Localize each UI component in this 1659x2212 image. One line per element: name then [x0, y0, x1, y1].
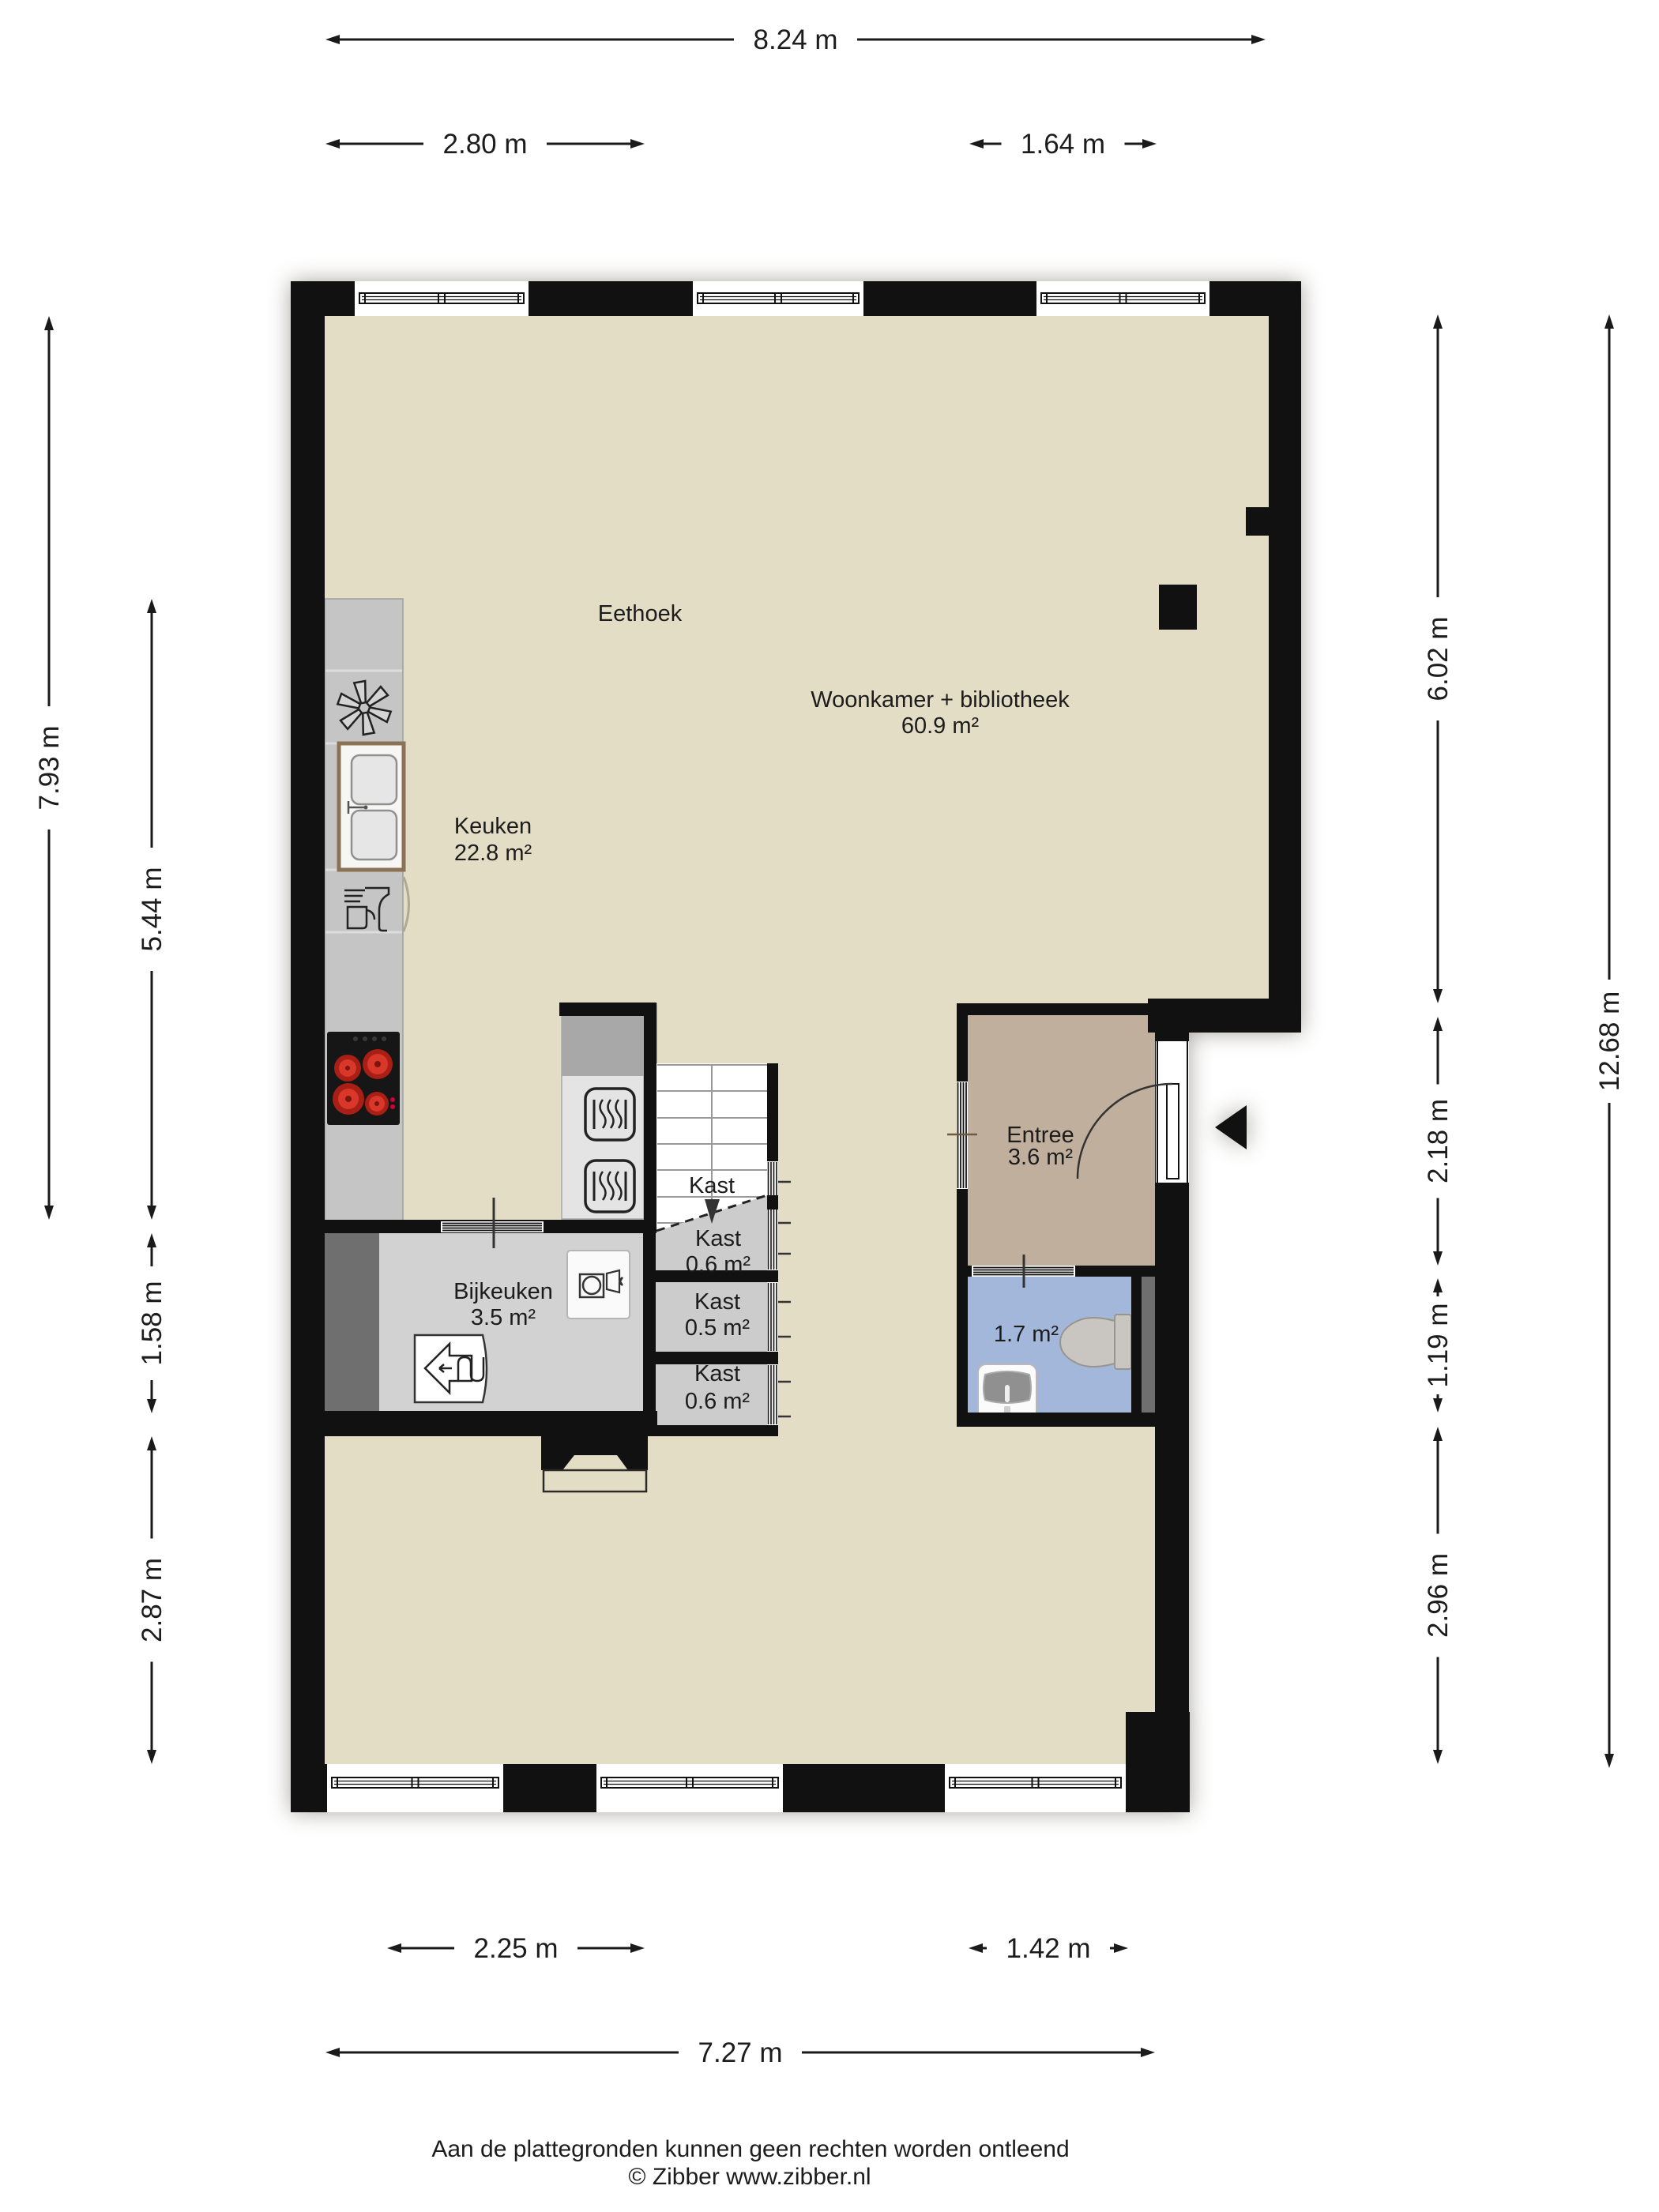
- svg-text:Kast: Kast: [689, 1173, 735, 1198]
- svg-text:22.8 m²: 22.8 m²: [454, 841, 532, 866]
- svg-text:60.9 m²: 60.9 m²: [901, 713, 980, 739]
- svg-text:Aan de plattegronden kunnen ge: Aan de plattegronden kunnen geen rechten…: [431, 2136, 1069, 2162]
- svg-text:0.6 m²: 0.6 m²: [685, 1389, 750, 1414]
- svg-text:6.02 m: 6.02 m: [1423, 617, 1454, 702]
- svg-text:Kast: Kast: [695, 1226, 741, 1251]
- svg-text:Eethoek: Eethoek: [598, 601, 683, 626]
- svg-text:7.27 m: 7.27 m: [698, 2037, 783, 2068]
- svg-text:Kast: Kast: [694, 1361, 740, 1386]
- svg-text:2.96 m: 2.96 m: [1423, 1553, 1454, 1638]
- svg-text:7.93 m: 7.93 m: [34, 726, 65, 811]
- svg-text:1.7 m²: 1.7 m²: [994, 1322, 1059, 1347]
- svg-text:1.58 m: 1.58 m: [137, 1281, 167, 1366]
- svg-text:5.44 m: 5.44 m: [137, 867, 167, 952]
- svg-text:8.24 m: 8.24 m: [754, 24, 838, 55]
- svg-text:2.18 m: 2.18 m: [1423, 1099, 1454, 1183]
- svg-text:0.5 m²: 0.5 m²: [685, 1315, 750, 1341]
- svg-text:Keuken: Keuken: [454, 814, 532, 839]
- svg-text:3.6 m²: 3.6 m²: [1008, 1145, 1074, 1170]
- svg-text:1.64 m: 1.64 m: [1021, 129, 1105, 160]
- svg-text:2.87 m: 2.87 m: [137, 1558, 167, 1642]
- svg-text:Woonkamer + bibliotheek: Woonkamer + bibliotheek: [811, 687, 1070, 713]
- svg-text:Bijkeuken: Bijkeuken: [453, 1279, 553, 1304]
- svg-text:Kast: Kast: [694, 1289, 740, 1315]
- svg-text:2.25 m: 2.25 m: [474, 1933, 559, 1964]
- svg-text:0.6 m²: 0.6 m²: [686, 1252, 751, 1277]
- svg-text:1.19 m: 1.19 m: [1423, 1303, 1454, 1388]
- svg-text:© Zibber www.zibber.nl: © Zibber www.zibber.nl: [628, 2164, 871, 2190]
- svg-text:2.80 m: 2.80 m: [443, 129, 528, 160]
- svg-text:12.68 m: 12.68 m: [1594, 991, 1625, 1091]
- svg-text:3.5 m²: 3.5 m²: [471, 1305, 536, 1330]
- svg-text:1.42 m: 1.42 m: [1006, 1933, 1091, 1964]
